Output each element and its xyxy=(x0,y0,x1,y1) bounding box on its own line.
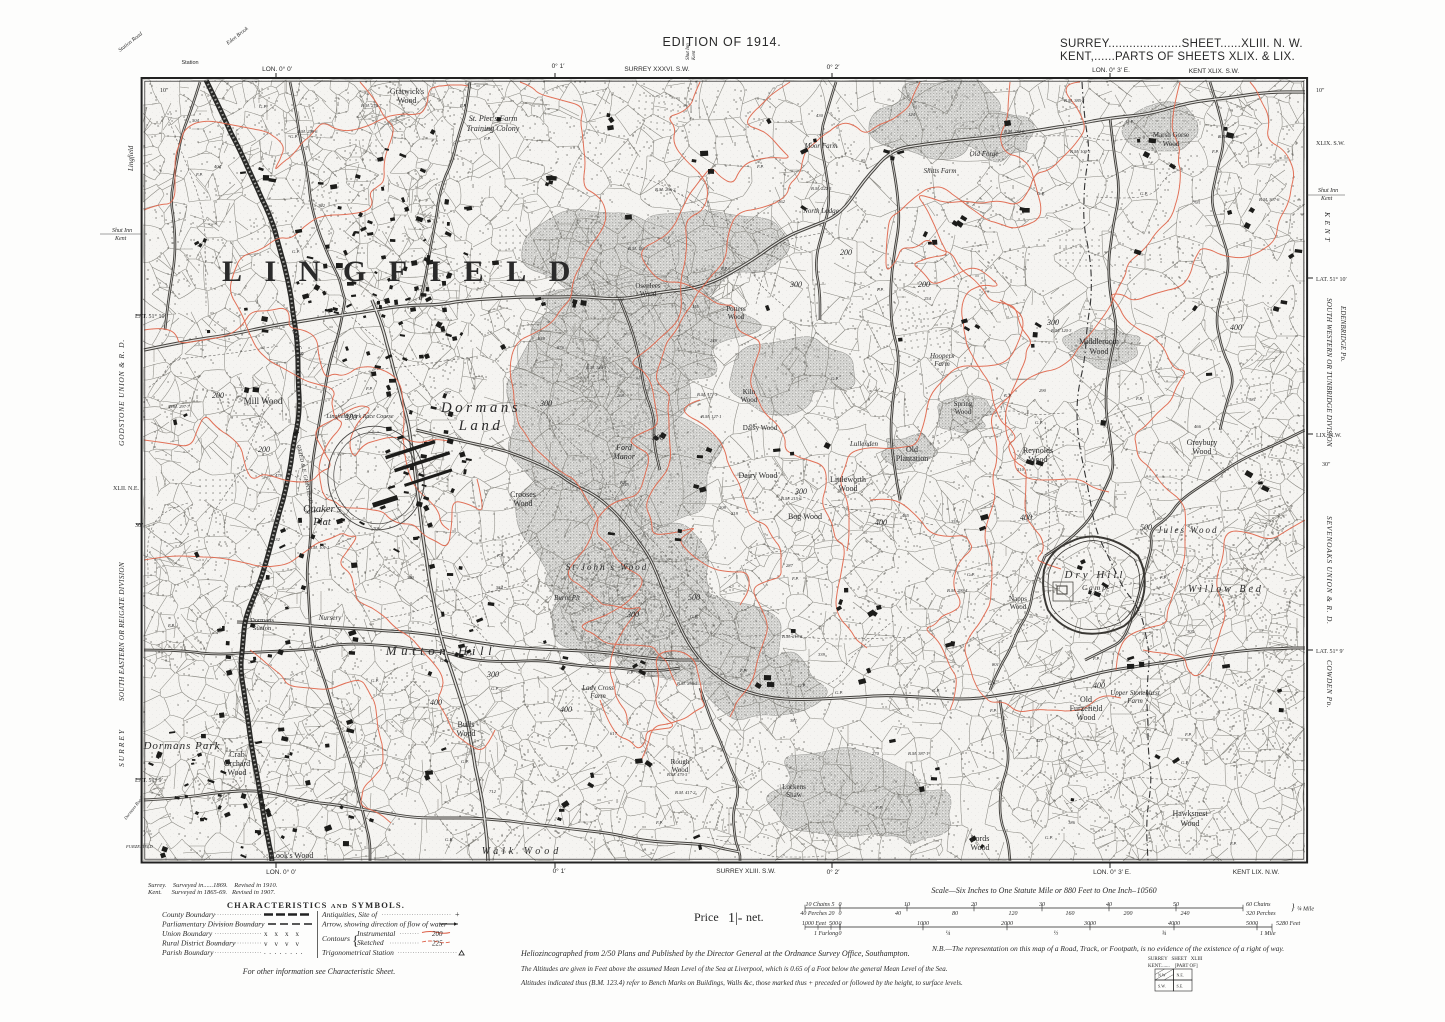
svg-text:F.P.: F.P. xyxy=(483,136,491,141)
svg-text:G.P.: G.P. xyxy=(1037,191,1045,196)
svg-text:Wood: Wood xyxy=(1090,347,1109,356)
svg-text:B.M. 290·4: B.M. 290·4 xyxy=(947,588,968,593)
svg-text:SURREY SHEET XLIII: SURREY SHEET XLIII xyxy=(1148,957,1203,962)
svg-text:Quaker's: Quaker's xyxy=(303,504,341,515)
svg-text:Instrumental: Instrumental xyxy=(356,929,395,938)
svg-text:Furzefield: Furzefield xyxy=(1070,704,1103,713)
svg-text:Wood: Wood xyxy=(839,484,858,493)
svg-text:F.P.: F.P. xyxy=(1184,732,1192,737)
svg-text:¼ Mile: ¼ Mile xyxy=(1297,907,1314,913)
svg-text:B.M. 250·5: B.M. 250·5 xyxy=(677,681,698,686)
svg-text:400: 400 xyxy=(1020,513,1032,522)
svg-text:KENT: KENT xyxy=(1323,211,1332,245)
svg-text:181: 181 xyxy=(1249,397,1256,402)
svg-text:F.P.: F.P. xyxy=(1092,656,1100,661)
svg-text:287: 287 xyxy=(444,390,452,395)
svg-text:B.M. 127·1: B.M. 127·1 xyxy=(701,414,721,419)
svg-text:Littleworth: Littleworth xyxy=(830,475,866,484)
svg-text:152: 152 xyxy=(617,297,625,302)
svg-text:Burnt Pit: Burnt Pit xyxy=(554,594,581,602)
svg-text:Dairy Wood: Dairy Wood xyxy=(739,471,778,480)
svg-text:Kent. Surveyed in 1865-69: Kent. Surveyed in 1865-69. Revised in 19… xyxy=(147,889,275,896)
svg-text:F.P.: F.P. xyxy=(1211,149,1219,154)
svg-text:SURREY XLIII. S.W.: SURREY XLIII. S.W. xyxy=(716,868,776,875)
svg-text:305: 305 xyxy=(1187,629,1195,634)
svg-text:Wood: Wood xyxy=(1193,447,1212,456)
svg-text:F.P.: F.P. xyxy=(739,668,747,673)
svg-text:Lingfield Park Race Course: Lingfield Park Race Course xyxy=(325,413,393,420)
svg-text:F.P.: F.P. xyxy=(875,805,883,810)
svg-text:Kent: Kent xyxy=(692,50,697,61)
svg-text:Upper Stonehurst: Upper Stonehurst xyxy=(1110,689,1161,697)
svg-text:F.P.: F.P. xyxy=(195,172,203,177)
svg-text:5000: 5000 xyxy=(1246,921,1258,927)
svg-text:LINGFIELD: LINGFIELD xyxy=(222,255,593,288)
svg-text:}: } xyxy=(1291,902,1295,912)
svg-text:465: 465 xyxy=(902,513,910,518)
svg-text:B.M. 346·1: B.M. 346·1 xyxy=(586,365,606,370)
svg-text:B.M. 116·1: B.M. 116·1 xyxy=(628,246,648,251)
svg-text:N.B.—The representation on thi: N.B.—The representation on this map of a… xyxy=(931,944,1284,953)
svg-text:392: 392 xyxy=(318,203,326,208)
svg-text:Shut Inn: Shut Inn xyxy=(686,43,691,60)
svg-text:Crooses: Crooses xyxy=(510,490,536,499)
svg-text:Cook's Wood: Cook's Wood xyxy=(271,851,314,860)
svg-text:SURREY.....................SHE: SURREY.....................SHEET......XL… xyxy=(1060,38,1303,50)
svg-text:359: 359 xyxy=(951,519,959,524)
svg-text:S.W.: S.W. xyxy=(1158,984,1166,989)
svg-text:B.M. 215·6: B.M. 215·6 xyxy=(781,496,802,501)
svg-text:Hoopers: Hoopers xyxy=(929,352,954,360)
svg-text:Wood: Wood xyxy=(514,499,533,508)
svg-text:B.M. 307·6: B.M. 307·6 xyxy=(1259,197,1280,202)
svg-text:B.M. 101·1: B.M. 101·1 xyxy=(309,545,329,550)
svg-text:St John's Wood: St John's Wood xyxy=(566,562,649,572)
svg-text:500: 500 xyxy=(1140,523,1152,532)
svg-text:KENT,......PARTS OF SHEETS: KENT,......PARTS OF SHEETS XLIX. & LIX. xyxy=(1060,51,1295,63)
svg-text:Orchard: Orchard xyxy=(224,759,250,768)
svg-text:381: 381 xyxy=(790,718,797,723)
svg-text:B.M. 100·5: B.M. 100·5 xyxy=(1070,149,1091,154)
svg-text:510: 510 xyxy=(1017,467,1025,472)
svg-text:Parliamentary Division Boundar: Parliamentary Division Boundary xyxy=(161,920,265,929)
svg-text:COWDEN Pᴅ.: COWDEN Pᴅ. xyxy=(1325,660,1334,708)
svg-text:Gratwick's: Gratwick's xyxy=(390,87,424,96)
svg-text:30: 30 xyxy=(1038,902,1045,908)
svg-text:Dormans: Dormans xyxy=(440,400,521,416)
svg-text:¾: ¾ xyxy=(1162,931,1167,937)
svg-text:Shut Inn: Shut Inn xyxy=(112,228,132,234)
svg-text:Shitts Farm: Shitts Farm xyxy=(924,167,957,175)
svg-text:G.P.: G.P. xyxy=(292,249,300,254)
svg-text:248: 248 xyxy=(710,338,718,343)
svg-text:479: 479 xyxy=(275,473,283,478)
svg-text:Shaw: Shaw xyxy=(786,791,803,799)
svg-text:10 Chains 5: 10 Chains 5 xyxy=(805,902,836,908)
svg-text:Dormans: Dormans xyxy=(250,617,274,624)
svg-text:F.P.: F.P. xyxy=(1229,841,1237,846)
svg-text:508: 508 xyxy=(719,505,727,510)
svg-text:300: 300 xyxy=(789,280,802,289)
svg-text:Lockens: Lockens xyxy=(782,783,806,791)
svg-text:F.P.: F.P. xyxy=(876,287,884,292)
svg-text:County Boundary: County Boundary xyxy=(162,910,216,919)
svg-text:F.P.: F.P. xyxy=(720,266,728,271)
svg-text:Dry Hill: Dry Hill xyxy=(1064,569,1126,581)
svg-text:876: 876 xyxy=(557,345,565,350)
svg-text:Moor Farm: Moor Farm xyxy=(804,142,838,150)
svg-text:1|-: 1|- xyxy=(728,911,743,926)
svg-text:1 Furlong: 1 Furlong xyxy=(814,931,838,937)
svg-text:400: 400 xyxy=(1093,681,1105,690)
svg-text:200: 200 xyxy=(212,391,224,400)
svg-text:SOUTH EASTERN OR REIGATE D: SOUTH EASTERN OR REIGATE DIVISION xyxy=(118,561,126,701)
svg-text:F.P.: F.P. xyxy=(1159,575,1167,580)
svg-text:Hawksnest: Hawksnest xyxy=(1172,809,1208,818)
svg-text:400: 400 xyxy=(875,518,887,527)
svg-text:F.P.: F.P. xyxy=(365,386,373,391)
svg-text:Station: Station xyxy=(181,60,198,66)
svg-text:848: 848 xyxy=(538,336,546,341)
svg-text:B.M. 171·3: B.M. 171·3 xyxy=(697,392,718,397)
svg-text:Wood: Wood xyxy=(1010,603,1027,611)
svg-text:Wood: Wood xyxy=(457,729,476,738)
svg-text:200: 200 xyxy=(432,930,443,938)
svg-text:186: 186 xyxy=(1068,820,1076,825)
svg-text:0° 2′: 0° 2′ xyxy=(827,868,841,876)
svg-text:5280 Feet: 5280 Feet xyxy=(1276,921,1300,927)
svg-text:EDITION OF 1914.: EDITION OF 1914. xyxy=(662,35,781,49)
svg-text:Station: Station xyxy=(253,625,272,632)
svg-text:G.P.: G.P. xyxy=(445,837,453,842)
svg-text:40 Perches 20: 40 Perches 20 xyxy=(800,910,836,917)
svg-text:Wood: Wood xyxy=(1029,455,1048,464)
svg-text:400: 400 xyxy=(1230,323,1242,332)
svg-text:30″: 30″ xyxy=(135,523,144,529)
svg-text:Napps: Napps xyxy=(1009,595,1027,603)
svg-text:300: 300 xyxy=(344,413,357,422)
svg-text:B.M. 417·2: B.M. 417·2 xyxy=(675,790,696,795)
svg-text:. . . . . . . .: . . . . . . . . xyxy=(264,948,303,956)
svg-text:B.M. 258·6: B.M. 258·6 xyxy=(297,129,318,134)
svg-text:G.P.: G.P. xyxy=(1004,393,1012,398)
svg-text:300: 300 xyxy=(794,487,807,496)
svg-text:Osenlees: Osenlees xyxy=(635,282,661,290)
svg-text:G.P.: G.P. xyxy=(1035,420,1043,425)
svg-text:B.M. 276·7: B.M. 276·7 xyxy=(361,103,382,108)
svg-text:Wood: Wood xyxy=(1163,140,1180,148)
svg-text:400: 400 xyxy=(560,705,572,714)
svg-text:G.P.: G.P. xyxy=(690,614,698,619)
svg-text:B.M. 219·5: B.M. 219·5 xyxy=(782,634,803,639)
svg-text:G.P.: G.P. xyxy=(835,690,843,695)
svg-text:Old Forge: Old Forge xyxy=(969,150,998,158)
svg-text:B.M. 222·5: B.M. 222·5 xyxy=(811,186,832,191)
svg-text:KENT....... [PART OF]: KENT....... [PART OF] xyxy=(1148,964,1198,969)
svg-text:268: 268 xyxy=(617,393,625,398)
svg-text:219: 219 xyxy=(731,511,739,516)
svg-text:Spring: Spring xyxy=(954,400,973,408)
svg-text:LON. 0° 3′ E.: LON. 0° 3′ E. xyxy=(1092,66,1130,74)
svg-text:North Lodge: North Lodge xyxy=(802,207,839,215)
svg-text:10″: 10″ xyxy=(1316,88,1325,94)
svg-text:LAT. 51° 9′: LAT. 51° 9′ xyxy=(135,777,163,784)
svg-text:F.P.: F.P. xyxy=(619,480,627,485)
svg-text:KENT XLIX. S.W.: KENT XLIX. S.W. xyxy=(1189,68,1240,75)
svg-text:F.P.: F.P. xyxy=(655,820,663,825)
svg-text:1000 Feet: 1000 Feet xyxy=(802,921,826,927)
svg-text:S.E.: S.E. xyxy=(1177,984,1184,989)
svg-text:0: 0 xyxy=(839,931,842,937)
svg-text:N.E.: N.E. xyxy=(1177,973,1184,978)
svg-text:225: 225 xyxy=(432,940,443,948)
svg-text:60 Chains: 60 Chains xyxy=(1246,902,1271,908)
svg-text:200: 200 xyxy=(1124,911,1133,917)
svg-text:Lady Cross: Lady Cross xyxy=(581,684,614,692)
svg-text:N.W: N.W xyxy=(1158,973,1166,978)
svg-text:net.: net. xyxy=(746,910,764,924)
svg-text:50: 50 xyxy=(1173,902,1179,908)
svg-text:160: 160 xyxy=(1066,911,1075,917)
svg-text:G.P.: G.P. xyxy=(461,759,469,764)
svg-text:Walk Wood: Walk Wood xyxy=(482,846,563,857)
svg-text:0: 0 xyxy=(839,921,842,927)
svg-text:Mutton Hill: Mutton Hill xyxy=(385,643,497,658)
svg-text:120: 120 xyxy=(1009,911,1018,917)
svg-text:Arrow, showing direction of fl: Arrow, showing direction of flow of wate… xyxy=(321,920,447,929)
svg-text:0° 2′: 0° 2′ xyxy=(827,63,841,71)
svg-text:300: 300 xyxy=(651,433,664,442)
svg-text:Ford: Ford xyxy=(615,443,633,452)
svg-text:½: ½ xyxy=(1054,930,1059,937)
svg-text:10: 10 xyxy=(904,902,910,908)
svg-text:B.M. 387·1: B.M. 387·1 xyxy=(908,751,928,756)
svg-text:Manor: Manor xyxy=(612,452,636,461)
svg-text:KENT LIX. N.W.: KENT LIX. N.W. xyxy=(1233,869,1280,876)
svg-text:287: 287 xyxy=(786,563,794,568)
svg-text:793: 793 xyxy=(1193,200,1201,205)
svg-text:B.M. 120·3: B.M. 120·3 xyxy=(1051,328,1072,333)
svg-text:2000: 2000 xyxy=(1001,921,1013,927)
svg-text:0° 1′: 0° 1′ xyxy=(552,62,566,70)
svg-text:G.P.: G.P. xyxy=(290,134,298,139)
svg-text:10″: 10″ xyxy=(160,88,169,94)
svg-text:Kiln: Kiln xyxy=(743,388,756,396)
svg-text:Reynolds: Reynolds xyxy=(1023,446,1053,455)
svg-text:0° 1′: 0° 1′ xyxy=(553,867,567,875)
svg-text:Parish Boundary: Parish Boundary xyxy=(161,948,214,957)
svg-text:Wood: Wood xyxy=(640,290,657,298)
svg-text:Nursery: Nursery xyxy=(318,614,342,622)
svg-text:B.M. 385·3: B.M. 385·3 xyxy=(1064,98,1085,103)
svg-text:Wood: Wood xyxy=(741,396,758,404)
svg-text:F.P.: F.P. xyxy=(1135,396,1143,401)
svg-text:F.P.: F.P. xyxy=(791,576,799,581)
svg-text:GODSTONE UNION & R. D.: GODSTONE UNION & R. D. xyxy=(117,339,126,446)
svg-text:617: 617 xyxy=(610,731,618,736)
svg-text:554: 554 xyxy=(496,585,504,590)
svg-text:SURREY: SURREY xyxy=(117,728,126,767)
svg-text:Lords: Lords xyxy=(971,834,990,843)
svg-text:290: 290 xyxy=(1039,388,1047,393)
svg-text:LAT. 51° 10′: LAT. 51° 10′ xyxy=(135,313,166,320)
svg-text:G.P.: G.P. xyxy=(1126,119,1134,124)
svg-text:F.P.: F.P. xyxy=(496,553,504,558)
svg-text:Marsh Gorse: Marsh Gorse xyxy=(1153,131,1189,139)
svg-text:CHARACTERISTICS AND SYMBOLS.: CHARACTERISTICS AND SYMBOLS. xyxy=(227,900,405,910)
svg-text:Old: Old xyxy=(1080,695,1092,704)
svg-text:Land: Land xyxy=(458,418,504,434)
svg-text:B.M. 297·7: B.M. 297·7 xyxy=(169,404,190,409)
svg-text:Daisy Wood: Daisy Wood xyxy=(743,424,778,432)
svg-text:Kent: Kent xyxy=(114,236,127,242)
svg-text:Wood: Wood xyxy=(1181,819,1200,828)
svg-text:¼: ¼ xyxy=(946,931,951,937)
svg-text:G.P.: G.P. xyxy=(831,376,839,381)
svg-text:Farm: Farm xyxy=(1126,697,1143,705)
svg-text:124: 124 xyxy=(908,112,916,117)
svg-text:G.P.: G.P. xyxy=(988,681,996,686)
svg-text:G.P.: G.P. xyxy=(798,683,806,688)
svg-text:Altitudes indicated thus (B.M.: Altitudes indicated thus (B.M. 123.4) re… xyxy=(520,979,963,987)
svg-text:801: 801 xyxy=(992,662,999,667)
svg-text:FURZEFIELD: FURZEFIELD xyxy=(125,844,153,849)
svg-text:404: 404 xyxy=(214,164,222,169)
svg-text:LIX. N.W.: LIX. N.W. xyxy=(1316,433,1342,439)
svg-text:Plantation: Plantation xyxy=(896,454,928,463)
svg-text:270: 270 xyxy=(872,751,880,756)
svg-text:Dormans Park: Dormans Park xyxy=(142,740,220,752)
svg-text:Bulls: Bulls xyxy=(458,720,475,729)
svg-text:Crab: Crab xyxy=(229,750,245,759)
svg-text:Wood: Wood xyxy=(971,843,990,852)
svg-text:EDENBRIDGE Pᴅ.: EDENBRIDGE Pᴅ. xyxy=(1339,305,1346,362)
svg-text:240: 240 xyxy=(1181,910,1190,917)
svg-text:Mill Wood: Mill Wood xyxy=(244,396,283,406)
svg-text:Willow Bed: Willow Bed xyxy=(1188,584,1264,595)
svg-text:F.P.: F.P. xyxy=(756,164,764,169)
svg-text:Training Colony: Training Colony xyxy=(467,124,520,133)
svg-text:Greybury: Greybury xyxy=(1187,438,1218,447)
svg-text:Plat: Plat xyxy=(312,517,332,528)
svg-text:Kent: Kent xyxy=(1320,196,1333,202)
svg-text:F.P.: F.P. xyxy=(626,670,634,675)
svg-text:Scale—Six Inches to One Statut: Scale—Six Inches to One Statute Mile or … xyxy=(931,886,1156,895)
svg-text:G.P.: G.P. xyxy=(440,658,448,663)
svg-text:427: 427 xyxy=(1036,738,1044,743)
svg-text:300: 300 xyxy=(539,399,552,408)
svg-text:Wood: Wood xyxy=(728,313,745,321)
svg-text:254: 254 xyxy=(924,296,932,301)
svg-text:Surrey. Surveyed in......18: Surrey. Surveyed in......1869. Revised i… xyxy=(148,882,278,889)
svg-text:Middleroom: Middleroom xyxy=(1079,337,1120,346)
svg-text:Lullenden: Lullenden xyxy=(849,440,878,448)
svg-text:300: 300 xyxy=(626,610,639,619)
svg-text:LAT. 51° 10′: LAT. 51° 10′ xyxy=(1316,276,1347,283)
svg-text:300: 300 xyxy=(486,670,499,679)
svg-text:LAT. 51° 9′: LAT. 51° 9′ xyxy=(1316,648,1344,655)
svg-text:Wood: Wood xyxy=(672,766,689,774)
svg-text:Price: Price xyxy=(694,910,719,924)
svg-text:Antiquities, Site of: Antiquities, Site of xyxy=(321,910,378,919)
svg-text:Wood: Wood xyxy=(398,96,417,105)
svg-text:1000: 1000 xyxy=(917,921,929,927)
svg-text:SEVENOAKS UNION & R. D.: SEVENOAKS UNION & R. D. xyxy=(1325,516,1334,625)
svg-text:G.P.: G.P. xyxy=(259,104,267,109)
svg-text:40: 40 xyxy=(1106,901,1112,908)
svg-text:LON. 0° 0′: LON. 0° 0′ xyxy=(262,65,293,73)
svg-text:466: 466 xyxy=(1194,424,1202,429)
svg-text:F.P.: F.P. xyxy=(459,103,467,108)
svg-text:500: 500 xyxy=(688,593,700,602)
svg-text:F.P.: F.P. xyxy=(167,623,175,628)
svg-text:3000: 3000 xyxy=(1083,921,1096,927)
svg-text:B.M. 326·6: B.M. 326·6 xyxy=(1218,134,1239,139)
svg-text:G.P.: G.P. xyxy=(491,686,499,691)
svg-text:G.P.: G.P. xyxy=(1140,191,1148,196)
svg-text:400: 400 xyxy=(430,698,442,707)
svg-text:430: 430 xyxy=(816,113,824,118)
svg-text:XLII. N.E.: XLII. N.E. xyxy=(113,486,139,492)
svg-text:G.P.: G.P. xyxy=(1181,760,1189,765)
svg-text:B.M. 232·8: B.M. 232·8 xyxy=(1004,129,1025,134)
svg-text:4000: 4000 xyxy=(1168,920,1180,927)
svg-text:500: 500 xyxy=(829,921,838,927)
svg-text:Bog Wood: Bog Wood xyxy=(788,512,822,521)
svg-text:30″: 30″ xyxy=(1322,462,1331,468)
svg-text:Jules Wood: Jules Wood xyxy=(1158,525,1219,535)
svg-text:Rough: Rough xyxy=(671,758,690,766)
svg-text:G.P.: G.P. xyxy=(932,688,940,693)
svg-text:0: 0 xyxy=(839,902,842,908)
svg-text:1 Mile: 1 Mile xyxy=(1260,931,1276,937)
svg-text:80: 80 xyxy=(952,911,958,917)
svg-text:G.P.: G.P. xyxy=(371,678,379,683)
svg-text:Wood: Wood xyxy=(1077,713,1096,722)
svg-text:300: 300 xyxy=(1046,318,1059,327)
svg-text:G.P.: G.P. xyxy=(967,572,975,577)
svg-text:0: 0 xyxy=(839,911,842,917)
svg-text:712: 712 xyxy=(489,789,497,794)
svg-text:200: 200 xyxy=(918,280,930,289)
svg-text:162: 162 xyxy=(778,199,786,204)
svg-text:Sketched: Sketched xyxy=(357,938,384,947)
svg-text:Potters: Potters xyxy=(726,305,746,313)
svg-text:Camp: Camp xyxy=(1082,583,1108,592)
svg-text:SURREY XXXVI. S.W.: SURREY XXXVI. S.W. xyxy=(624,66,689,73)
svg-text:Contours: Contours xyxy=(322,934,350,943)
svg-text:Shut Inn: Shut Inn xyxy=(1318,188,1338,194)
svg-text:339: 339 xyxy=(818,652,826,657)
svg-text:320 Perches: 320 Perches xyxy=(1245,911,1276,917)
svg-text:G.P.: G.P. xyxy=(1045,835,1053,840)
svg-text:B.M. 266·2: B.M. 266·2 xyxy=(655,187,676,192)
svg-text:Wood: Wood xyxy=(228,768,247,777)
svg-text:Farm: Farm xyxy=(933,360,950,368)
svg-text:Heliozincographed from 2/50 Pl: Heliozincographed from 2/50 Plans and Pu… xyxy=(520,949,910,958)
svg-text:XLIX. S.W.: XLIX. S.W. xyxy=(1316,141,1345,147)
svg-text:Wood: Wood xyxy=(955,408,972,416)
svg-text:Union Boundary: Union Boundary xyxy=(162,929,213,938)
svg-text:For other information see Char: For other information see Characteristic… xyxy=(242,967,395,976)
svg-text:Farm: Farm xyxy=(589,692,606,700)
svg-text:The Altitudes are given in Fee: The Altitudes are given in Feet above th… xyxy=(521,965,948,973)
svg-text:20: 20 xyxy=(971,902,977,908)
svg-text:200: 200 xyxy=(258,445,270,454)
svg-text:200: 200 xyxy=(840,248,852,257)
svg-text:F.P.: F.P. xyxy=(989,708,997,713)
svg-text:x x x x: x x x x xyxy=(264,930,300,938)
